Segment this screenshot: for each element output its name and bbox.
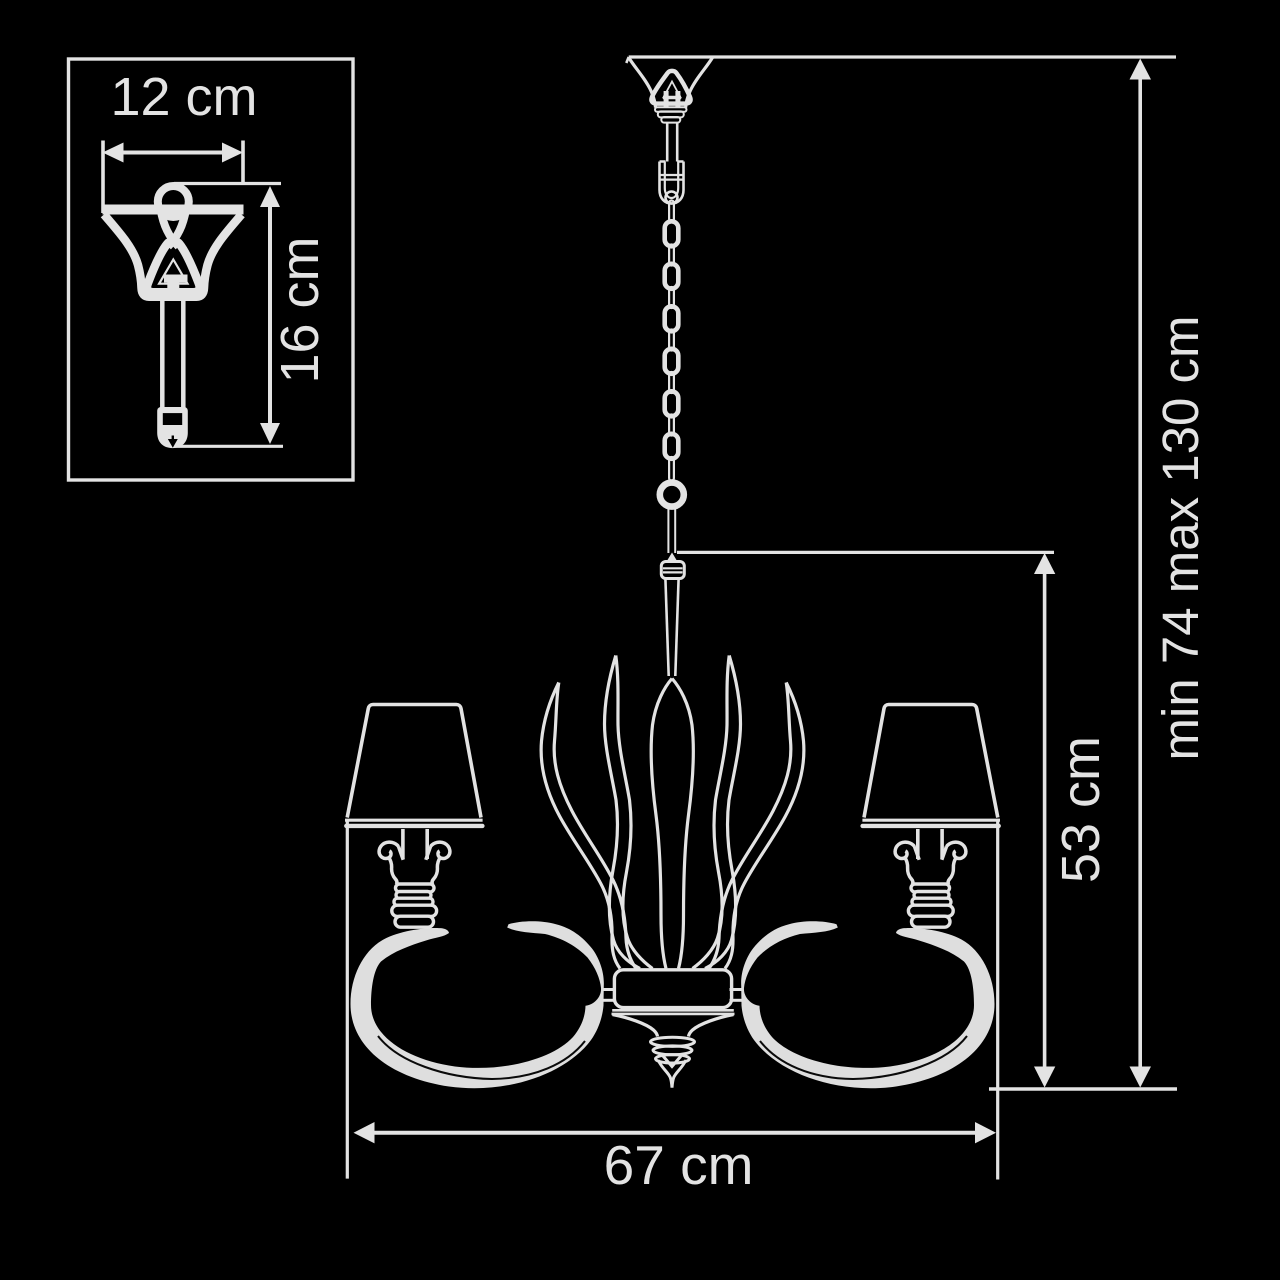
svg-text:12 cm: 12 cm	[110, 67, 257, 127]
svg-text:67 cm: 67 cm	[604, 1134, 754, 1196]
svg-text:53 cm: 53 cm	[1051, 736, 1111, 883]
svg-text:min 74 max 130 cm: min 74 max 130 cm	[1152, 315, 1209, 760]
svg-text:16 cm: 16 cm	[270, 236, 330, 383]
